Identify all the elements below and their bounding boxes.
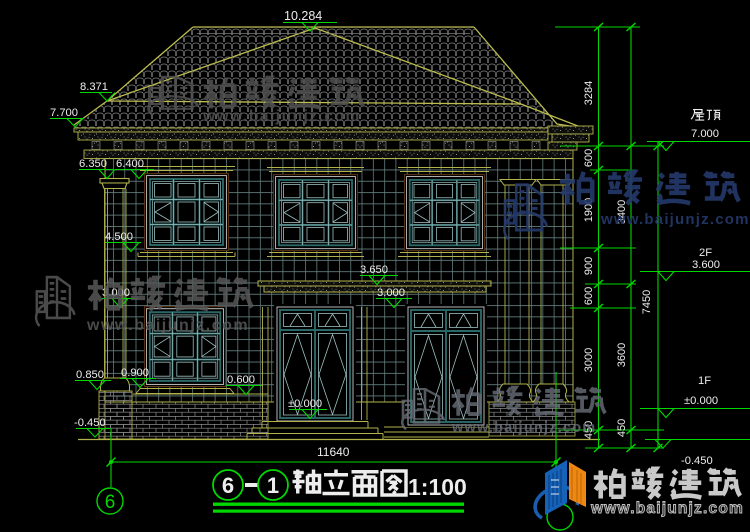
svg-text:4.500: 4.500 — [105, 231, 133, 243]
svg-text:11640: 11640 — [317, 445, 350, 459]
svg-text:3.650: 3.650 — [360, 264, 388, 276]
svg-text:0.600: 0.600 — [227, 374, 255, 386]
svg-text:8.371: 8.371 — [80, 81, 108, 93]
svg-text:www.baijunjz.com: www.baijunjz.com — [590, 500, 744, 517]
svg-text:1:100: 1:100 — [408, 474, 467, 500]
svg-text:600: 600 — [583, 149, 595, 167]
svg-text:450: 450 — [616, 419, 628, 437]
svg-text:600: 600 — [583, 287, 595, 305]
svg-text:10.284: 10.284 — [284, 9, 322, 23]
svg-text:7.700: 7.700 — [50, 107, 78, 119]
svg-text:3.600: 3.600 — [692, 259, 720, 271]
svg-text:1: 1 — [267, 473, 279, 498]
svg-text:0.900: 0.900 — [121, 367, 149, 379]
svg-text:0.850: 0.850 — [76, 369, 104, 381]
svg-text:900: 900 — [583, 257, 595, 275]
svg-text:2F: 2F — [699, 247, 712, 259]
svg-text:www.baijunjz.com: www.baijunjz.com — [451, 420, 596, 436]
svg-text:6: 6 — [222, 473, 234, 498]
svg-text:6.400: 6.400 — [116, 158, 144, 170]
svg-text:6: 6 — [105, 492, 116, 513]
svg-text:7450: 7450 — [641, 290, 653, 314]
svg-text:www.baijunjz.com: www.baijunjz.com — [86, 317, 249, 334]
svg-text:3.000: 3.000 — [377, 287, 405, 299]
svg-text:www.baijunjz.com: www.baijunjz.com — [600, 211, 750, 228]
svg-text:1F: 1F — [698, 375, 711, 387]
svg-text:6.350: 6.350 — [79, 158, 107, 170]
svg-text:-0.450: -0.450 — [74, 417, 106, 429]
svg-text:-0.450: -0.450 — [681, 455, 713, 467]
svg-text:±0.000: ±0.000 — [684, 395, 718, 407]
svg-text:7.000: 7.000 — [691, 128, 719, 140]
svg-text:3000: 3000 — [583, 348, 595, 372]
svg-text:±0.000: ±0.000 — [288, 398, 322, 410]
svg-text:3284: 3284 — [583, 81, 595, 105]
svg-text:3600: 3600 — [616, 343, 628, 367]
svg-text:www.baijunjz.com: www.baijunjz.com — [202, 108, 361, 125]
